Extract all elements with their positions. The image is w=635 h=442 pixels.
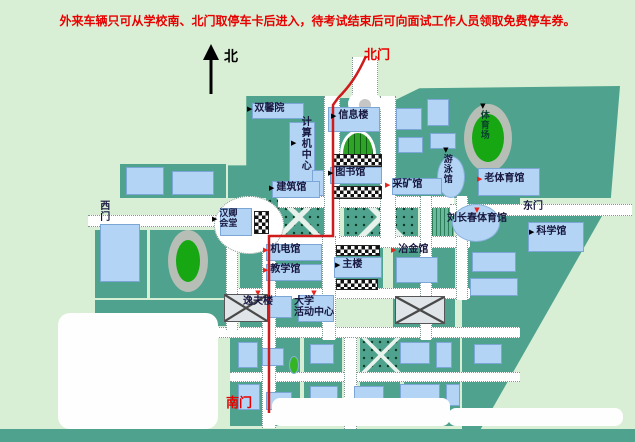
- building: [400, 342, 430, 364]
- arrow-right-icon: ▶: [269, 185, 274, 192]
- arrow-right-icon: ▶: [391, 247, 396, 254]
- parking-notice-text: 外来车辆只可从学校南、北门取停车卡后进入，待考试结束后可向面试工作人员领取免费停…: [0, 12, 635, 29]
- label-text: 主楼: [342, 260, 362, 271]
- building: [238, 342, 258, 368]
- label-text: 南门: [226, 397, 252, 411]
- liuchangchun-gym-label: ▼刘长春体育馆: [447, 207, 507, 225]
- park-area: [360, 338, 402, 372]
- arrow-right-icon: ▶: [529, 229, 534, 236]
- label-text: 计算机中心: [298, 116, 309, 171]
- shuangxinyuan-label: ▶双馨院: [247, 104, 284, 115]
- checker-building: [336, 279, 378, 290]
- arrow-right-icon: ▶: [212, 216, 217, 223]
- label-text: 建筑馆: [276, 183, 306, 194]
- building: [472, 252, 516, 272]
- label-text: 逸夫楼: [243, 297, 273, 308]
- teaching-hall-label: ▶教学馆: [263, 265, 300, 276]
- road: [322, 236, 336, 340]
- arrow-right-icon: ▶: [291, 140, 296, 147]
- arrow-right-icon: ▶: [247, 106, 252, 113]
- arrow-right-icon: ▶: [331, 113, 336, 120]
- metallurgy-hall-label: ▶冶金馆: [391, 245, 428, 256]
- label-text: 采矿馆: [392, 180, 422, 191]
- open-area: [448, 408, 623, 426]
- building: [398, 137, 423, 153]
- mechatronics-hall-label: ▶机电馆: [263, 245, 300, 256]
- building: [172, 171, 214, 195]
- mining-hall-label: ▶采矿馆: [385, 180, 422, 191]
- arrow-right-icon: ▶: [477, 176, 482, 183]
- swimming-hall-label: ▼游泳馆: [441, 147, 451, 184]
- open-area: [58, 313, 218, 429]
- checker-building: [254, 211, 269, 234]
- bottom-parcel: [0, 429, 635, 442]
- south-gate-label: 南门: [226, 397, 252, 411]
- building: [100, 224, 140, 282]
- library-label: ▶图书馆: [328, 168, 365, 179]
- information-building-label: ▶信息楼: [331, 111, 368, 122]
- arrow-right-icon: ▶: [263, 247, 268, 254]
- building: [427, 99, 449, 126]
- label-text: 冶金馆: [398, 245, 428, 256]
- label-text: 汉卿 会堂: [219, 210, 237, 229]
- main-building-label: ▶主楼: [335, 260, 362, 271]
- label-text: 大学 活动中心: [294, 297, 334, 319]
- university-activity-center-label: ▼大学 活动中心: [294, 290, 334, 319]
- arrow-right-icon: ▶: [385, 182, 390, 189]
- north-label: 北: [224, 46, 238, 66]
- stadium-track: [168, 230, 208, 292]
- oval-building: [289, 356, 299, 374]
- label-text: 双馨院: [254, 104, 284, 115]
- east-gate-label: 东门: [523, 202, 543, 213]
- label-text: 图书馆: [335, 168, 365, 179]
- label-text: 刘长春体育馆: [447, 214, 507, 225]
- old-gym-label: ▶老体育馆: [477, 174, 524, 185]
- west-gate-label: 西门: [97, 200, 108, 222]
- arrow-right-icon: ▶: [263, 267, 268, 274]
- arrow-right-icon: ▶: [335, 262, 340, 269]
- label-text: 科学馆: [536, 227, 566, 238]
- checker-building: [332, 186, 382, 199]
- computer-center-label: ▶计算机中心: [291, 116, 309, 171]
- campus-map: 外来车辆只可从学校南、北门取停车卡后进入，待考试结束后可向面试工作人员领取免费停…: [0, 0, 635, 442]
- checker-building: [332, 154, 382, 167]
- building: [436, 342, 452, 368]
- architecture-hall-label: ▶建筑馆: [269, 183, 306, 194]
- label-text: 信息楼: [338, 111, 368, 122]
- stadium-field: [176, 240, 200, 282]
- stadium-label: ▼体育场: [478, 103, 488, 140]
- label-text: 游泳馆: [441, 154, 451, 184]
- building: [396, 108, 422, 130]
- building: [126, 167, 164, 195]
- building: [396, 257, 438, 283]
- north-arrow: 北: [198, 44, 238, 96]
- checker-building: [336, 245, 380, 256]
- label-text: 老体育馆: [484, 174, 524, 185]
- label-text: 体育场: [478, 110, 488, 140]
- road: [380, 96, 396, 238]
- yifu-building-label: ▼逸夫楼: [243, 290, 273, 308]
- building: [470, 278, 518, 296]
- north-arrow-icon: [198, 44, 224, 96]
- label-text: 西门: [97, 200, 108, 222]
- label-text: 机电馆: [270, 245, 300, 256]
- label-text: 北门: [364, 49, 390, 63]
- arrow-right-icon: ▶: [328, 170, 333, 177]
- building: [262, 348, 284, 366]
- arrow-down-icon: ▼: [480, 103, 485, 110]
- label-text: 东门: [523, 202, 543, 213]
- open-area: [272, 398, 450, 426]
- construction-area: [395, 296, 445, 324]
- hanqing-hall-label: ▶汉卿 会堂: [212, 210, 237, 229]
- label-text: 教学馆: [270, 265, 300, 276]
- arrow-down-icon: ▼: [443, 147, 448, 154]
- north-gate-label: 北门: [364, 49, 390, 63]
- building: [310, 344, 334, 364]
- building: [474, 344, 502, 364]
- science-hall-label: ▶科学馆: [529, 227, 566, 238]
